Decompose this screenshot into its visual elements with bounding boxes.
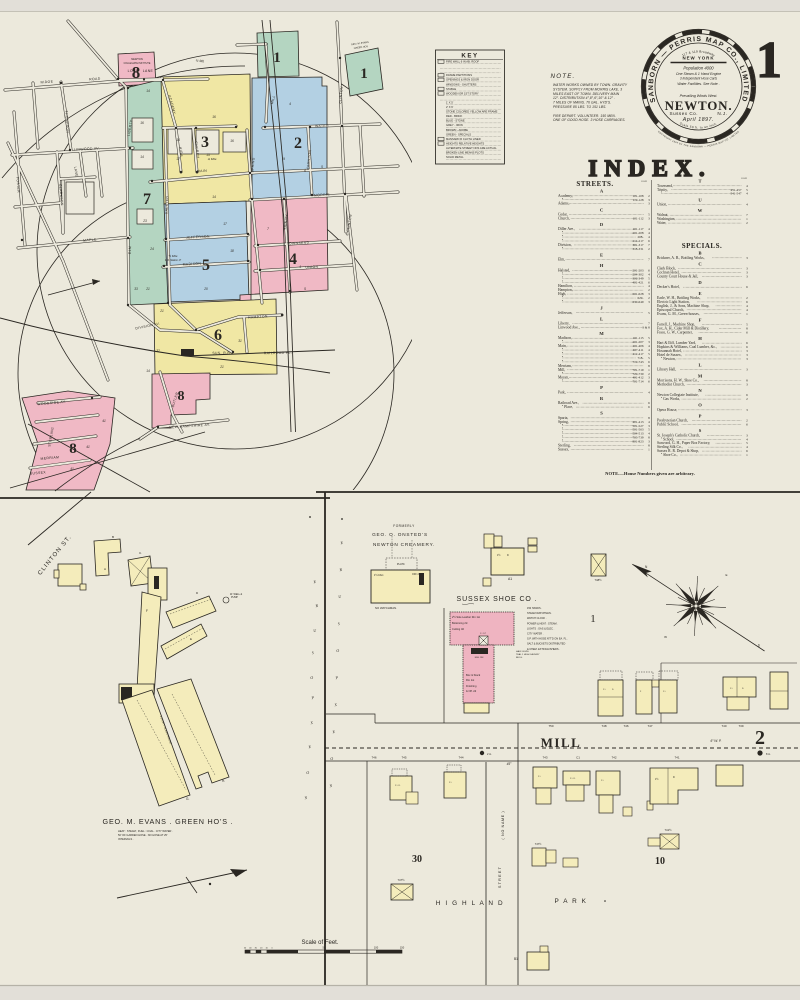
- svg-text:150: 150: [400, 946, 405, 950]
- svg-text:RAILROAD PL.: RAILROAD PL.: [264, 351, 292, 355]
- svg-text:3: 3: [201, 134, 209, 151]
- svg-text:6″ W. P.: 6″ W. P.: [710, 739, 721, 743]
- svg-text:& Off. 2d: & Off. 2d: [466, 689, 477, 693]
- svg-text:10: 10: [655, 856, 665, 867]
- svg-text:LIGHTS : GAS & ELEC .: LIGHTS : GAS & ELEC .: [527, 627, 555, 630]
- svg-text:8: 8: [69, 441, 77, 457]
- svg-text:9: 9: [283, 157, 285, 161]
- svg-text:ENG. RM: ENG. RM: [475, 657, 484, 659]
- svg-text:W: W: [698, 208, 703, 213]
- svg-text:6: 6: [304, 169, 306, 173]
- svg-text:C: C: [600, 207, 603, 212]
- svg-text:Water Facilities. See Note .: Water Facilities. See Note .: [677, 82, 719, 86]
- svg-text:41: 41: [102, 419, 106, 423]
- svg-text:G.: G.: [186, 797, 189, 801]
- svg-text:5: 5: [321, 165, 323, 169]
- svg-text:E: E: [725, 573, 727, 577]
- svg-text:ALTERNATE STREET NOS ARE ACTUA: ALTERNATE STREET NOS ARE ACTUAL: [446, 146, 497, 150]
- svg-text:7: 7: [267, 227, 269, 231]
- svg-text:14: 14: [176, 138, 180, 142]
- svg-text:P: P: [699, 413, 702, 418]
- svg-text:SUSSEX SHOE CO .: SUSSEX SHOE CO .: [457, 596, 538, 603]
- svg-text:STABLE: STABLE: [446, 87, 456, 91]
- svg-text:H: H: [600, 263, 604, 268]
- svg-text:FIRE WALL 6 IN AB. ROOF: FIRE WALL 6 IN AB. ROOF: [446, 60, 479, 64]
- svg-text:Box & Stock: Box & Stock: [466, 673, 481, 677]
- svg-text:23: 23: [142, 219, 147, 223]
- svg-text:¼ Mile: ¼ Mile: [208, 157, 217, 161]
- svg-text:742: 742: [611, 756, 616, 760]
- svg-text:14: 14: [140, 155, 144, 159]
- svg-text:STEAM WATCHMAN .: STEAM WATCHMAN .: [527, 612, 552, 615]
- svg-text:M: M: [599, 331, 604, 336]
- svg-text:747½: 747½: [535, 842, 542, 846]
- svg-text:P: P: [600, 385, 603, 390]
- svg-text:401-421: 401-421: [633, 280, 644, 284]
- svg-text:MAIN: MAIN: [197, 169, 207, 174]
- svg-text:S: S: [600, 411, 603, 416]
- svg-text:Cutting 3d: Cutting 3d: [452, 627, 464, 631]
- svg-text:FIRE DEPART. VOLUNTEER. 150: FIRE DEPART. VOLUNTEER. 150 MEN.: [553, 114, 616, 118]
- svg-text:750: 750: [548, 724, 553, 728]
- svg-text:Rm 1st: Rm 1st: [466, 678, 474, 682]
- svg-text:B: B: [112, 535, 114, 539]
- svg-text:14: 14: [146, 369, 150, 373]
- svg-text:5: 5: [202, 257, 210, 274]
- svg-text:16: 16: [140, 121, 144, 125]
- svg-text:TEAL 1 HIGH CAUSWY: TEAL 1 HIGH CAUSWY: [516, 653, 540, 656]
- svg-text:One Steam & 1 Hand Engine: One Steam & 1 Hand Engine: [676, 72, 721, 76]
- svg-text:14: 14: [212, 195, 216, 199]
- svg-text:STREETS.: STREETS.: [576, 180, 613, 188]
- svg-text:4: 4: [289, 102, 291, 106]
- svg-text:S: S: [758, 643, 760, 647]
- svg-text:31: 31: [238, 339, 242, 343]
- svg-text:744: 744: [458, 756, 463, 760]
- svg-text:Scale of Feet.: Scale of Feet.: [301, 940, 338, 946]
- svg-text:OPENINGS & IRON DOOR: OPENINGS & IRON DOOR: [446, 78, 479, 82]
- svg-text:NEW YORK: NEW YORK: [682, 56, 714, 61]
- svg-text:C.: C.: [139, 551, 142, 555]
- svg-text:6: 6: [214, 327, 222, 344]
- svg-text:GREEN - SPECIALS: GREEN - SPECIALS: [446, 132, 471, 136]
- svg-text:T: T: [698, 179, 701, 184]
- svg-text:HALF LEVEL: HALF LEVEL: [516, 650, 530, 653]
- svg-text:POWER & HEAT : STEAM .: POWER & HEAT : STEAM .: [527, 622, 558, 625]
- svg-text:50' OF GARDEN HOSE . NO HOSE: 50' OF GARDEN HOSE . NO HOSE AT 25': [118, 833, 168, 837]
- svg-text:1½: 1½: [655, 777, 658, 781]
- svg-text:O: O: [698, 403, 702, 408]
- svg-text:7: 7: [143, 191, 151, 208]
- svg-text:OFF 2.: OFF 2.: [412, 573, 420, 576]
- svg-text:L: L: [600, 316, 603, 321]
- svg-text:STREET: STREET: [498, 866, 502, 888]
- svg-text:719-743: 719-743: [633, 360, 644, 364]
- svg-text:2: 2: [294, 135, 302, 152]
- svg-text:Population 4000: Population 4000: [683, 66, 714, 71]
- svg-text:1: 1: [360, 66, 368, 82]
- svg-text:748: 748: [601, 724, 606, 728]
- svg-text:41: 41: [86, 445, 90, 449]
- svg-text:E: E: [190, 637, 192, 641]
- svg-text:KEY: KEY: [461, 53, 478, 60]
- svg-text:GREY - IRON: GREY - IRON: [446, 123, 463, 127]
- svg-text:5: 5: [304, 287, 306, 291]
- svg-text:½ Mile: ½ Mile: [169, 254, 178, 258]
- svg-text:2' X 6': 2' X 6': [446, 105, 454, 109]
- svg-text:32: 32: [156, 349, 160, 353]
- svg-text:WATCH CLOCK .: WATCH CLOCK .: [527, 617, 547, 620]
- svg-text:801-823: 801-823: [633, 440, 644, 444]
- svg-text:101-112: 101-112: [633, 216, 644, 220]
- svg-text:HEAT : STEAM ; FUEL : COAL .: HEAT : STEAM ; FUEL : COAL . CITY WATER …: [118, 829, 173, 833]
- svg-text:541-547: 541-547: [731, 192, 742, 196]
- svg-text:RED - BRICK: RED - BRICK: [446, 114, 462, 118]
- svg-text:H: H: [698, 336, 702, 341]
- svg-text:WATER WORKS OWNED BY TOWN. GRA: WATER WORKS OWNED BY TOWN. GRAVITY: [553, 83, 628, 87]
- svg-text:F: F: [146, 609, 148, 613]
- svg-text:743: 743: [542, 756, 547, 760]
- svg-text:ELM: ELM: [128, 246, 132, 254]
- svg-text:2 in.: 2 in.: [487, 752, 492, 756]
- svg-text:4: 4: [299, 265, 301, 269]
- svg-text:20: 20: [203, 287, 208, 291]
- svg-text:GEO. O. ONSTED’S: GEO. O. ONSTED’S: [372, 532, 428, 537]
- svg-text:748½: 748½: [595, 578, 603, 582]
- svg-text:CITY WATER .: CITY WATER .: [527, 633, 544, 636]
- svg-text:1: 1: [756, 32, 782, 89]
- svg-text:150 HANDS .: 150 HANDS .: [527, 607, 542, 610]
- svg-text:N.J.: N.J.: [717, 111, 727, 116]
- svg-text:PAGE: PAGE: [741, 177, 747, 180]
- svg-text:BLDG.: BLDG.: [516, 657, 523, 659]
- svg-text:NEWTON: NEWTON: [131, 57, 143, 61]
- svg-text:WOODEN OR 1ST STORY: WOODEN OR 1ST STORY: [446, 91, 479, 95]
- svg-text:Bottoming 2d: Bottoming 2d: [452, 621, 468, 625]
- svg-text:PLATF.: PLATF.: [397, 562, 406, 566]
- svg-text:H I G H L A N D: H I G H L A N D: [436, 900, 505, 907]
- svg-text:WINDOWS - SHUTTERS: WINDOWS - SHUTTERS: [446, 82, 477, 86]
- svg-text:H.: H.: [222, 779, 225, 783]
- svg-text:PUMP: PUMP: [231, 596, 238, 599]
- svg-text:PRESSURE 85 LBS. TO 151 LBS.: PRESSURE 85 LBS. TO 151 LBS.: [553, 105, 607, 109]
- svg-text:741½: 741½: [665, 828, 673, 832]
- svg-text:17: 17: [223, 222, 227, 226]
- svg-text:NEWTON CREAMERY.: NEWTON CREAMERY.: [373, 542, 435, 547]
- svg-text:SOLID METAL: SOLID METAL: [446, 155, 464, 159]
- svg-text:FORMERLY: FORMERLY: [393, 524, 415, 528]
- svg-text:S.P. WITH HOSE ATT’D ON EA. FL: S.P. WITH HOSE ATT’D ON EA. FL .: [527, 638, 568, 641]
- svg-text:740: 740: [721, 724, 726, 728]
- svg-text:3 Independent Hose Carts: 3 Independent Hose Carts: [680, 77, 718, 81]
- svg-text:8 in.: 8 in.: [766, 752, 771, 756]
- svg-text:NOTE.—House Numbers given are: NOTE.—House Numbers given are arbitrary.: [605, 471, 695, 476]
- svg-text:HEIGHTS RELATIVE HEIGHTS: HEIGHTS RELATIVE HEIGHTS: [446, 141, 484, 145]
- svg-text:3 & 8: 3 & 8: [642, 325, 650, 329]
- svg-text:A: A: [104, 567, 106, 571]
- svg-text:NO WATCHMAN.: NO WATCHMAN.: [375, 606, 397, 610]
- svg-text:D: D: [673, 776, 675, 779]
- svg-text:1½ FAC.: 1½ FAC.: [374, 573, 384, 577]
- svg-text:14: 14: [146, 89, 150, 93]
- svg-text:12″. DISTRIBUTION 4″,8″,6″,10″: 12″. DISTRIBUTION 4″,8″,6″,10″ & 12″ .: [553, 96, 615, 100]
- svg-text:16: 16: [230, 139, 234, 143]
- svg-text:MANSARD R CLOTH LINED: MANSARD R CLOTH LINED: [446, 137, 481, 141]
- svg-text:WATER: WATER: [315, 124, 329, 128]
- svg-text:LOVE: LOVE: [128, 69, 139, 73]
- svg-text:P A R K: P A R K: [554, 898, 587, 905]
- svg-text:& CHEM. EXTINGUISHERS .: & CHEM. EXTINGUISHERS .: [527, 648, 560, 651]
- svg-text:16: 16: [212, 115, 216, 119]
- svg-text:21: 21: [219, 365, 224, 369]
- svg-text:7 MILES OF MAINS. 76 GAL. HYD': 7 MILES OF MAINS. 76 GAL. HYD'S.: [553, 101, 611, 105]
- svg-text:MILL: MILL: [541, 735, 582, 750]
- svg-text:MORRIS: MORRIS: [314, 193, 330, 198]
- svg-text:Sussex Co.: Sussex Co.: [670, 111, 699, 116]
- svg-text:INTERVALS .: INTERVALS .: [118, 837, 134, 841]
- svg-text:BLUE - STONE: BLUE - STONE: [446, 119, 465, 123]
- svg-text:2: 2: [755, 727, 765, 749]
- svg-text:1½: 1½: [497, 553, 500, 557]
- svg-text:1' X 5': 1' X 5': [446, 100, 454, 104]
- svg-text:24: 24: [149, 247, 154, 251]
- svg-text:701-714: 701-714: [633, 380, 644, 384]
- svg-text:100: 100: [374, 946, 379, 950]
- svg-text:BROKEN LINE MEANS PLOTS: BROKEN LINE MEANS PLOTS: [446, 151, 484, 155]
- svg-text:746: 746: [623, 724, 628, 728]
- svg-text:STONE COLORED YELLOW ARE FRAME: STONE COLORED YELLOW ARE FRAME: [446, 110, 498, 114]
- svg-text:ONE OF GOOD HOSE. 3 HOSE CARRI: ONE OF GOOD HOSE. 3 HOSE CARRIAGES.: [553, 118, 626, 122]
- svg-text:SYSTEM. SUPPLY FROM MORRIS LAK: SYSTEM. SUPPLY FROM MORRIS LAKE, 3: [553, 87, 622, 91]
- svg-text:D: D: [507, 554, 509, 557]
- svg-text:F: F: [699, 317, 702, 322]
- svg-text:W: W: [664, 635, 667, 639]
- svg-text:SPECIALS.: SPECIALS.: [682, 242, 722, 250]
- svg-text:45°: 45°: [507, 762, 513, 766]
- svg-text:746: 746: [371, 756, 376, 760]
- svg-text:L: L: [698, 363, 701, 368]
- svg-text:UNION: UNION: [305, 265, 318, 270]
- svg-text:747½: 747½: [398, 878, 406, 882]
- svg-text:1: 1: [590, 613, 596, 625]
- svg-text:SALT & BUCKETS DISTRIBUTED: SALT & BUCKETS DISTRIBUTED: [527, 643, 565, 646]
- svg-text:NOTE.: NOTE.: [551, 73, 576, 80]
- svg-text:4: 4: [289, 251, 297, 268]
- svg-text:PAGE: PAGE: [641, 180, 647, 183]
- svg-text:April 1897.: April 1897.: [682, 117, 714, 123]
- svg-text:MILES EAST OF TOWN. DELIVERY M: MILES EAST OF TOWN. DELIVERY MAIN: [553, 92, 620, 96]
- svg-text:C1: C1: [576, 756, 580, 760]
- svg-text:1: 1: [273, 50, 281, 66]
- svg-text:B1: B1: [514, 957, 518, 961]
- svg-text:119-128: 119-128: [633, 198, 644, 202]
- svg-text:18: 18: [230, 249, 234, 253]
- svg-text:SUS. R.R.: SUS. R.R.: [212, 351, 231, 355]
- svg-text:COLLEGIATE INSTITUTE: COLLEGIATE INSTITUTE: [124, 62, 151, 65]
- svg-text:INDEX.: INDEX.: [588, 156, 712, 182]
- svg-text:41: 41: [70, 467, 74, 471]
- svg-text:A1: A1: [508, 577, 512, 581]
- svg-text:C: C: [698, 261, 701, 266]
- svg-text:FRAME PARTITIONS: FRAME PARTITIONS: [446, 73, 472, 77]
- svg-text:GEO. M. EVANS . GREEN HO’S: GEO. M. EVANS . GREEN HO’S .: [103, 817, 234, 826]
- svg-text:( NO NAME ): ( NO NAME ): [501, 811, 505, 840]
- svg-text:Finishing: Finishing: [466, 684, 477, 688]
- svg-text:2½ Sole Leather Rm 1st: 2½ Sole Leather Rm 1st: [452, 615, 480, 619]
- svg-text:318-331: 318-331: [633, 247, 644, 251]
- svg-text:BROWN - ADOBE: BROWN - ADOBE: [446, 128, 468, 132]
- svg-text:745: 745: [401, 756, 406, 760]
- svg-text:747: 747: [647, 724, 652, 728]
- svg-text:21: 21: [145, 287, 150, 291]
- svg-text:33: 33: [134, 287, 138, 291]
- svg-text:21: 21: [159, 309, 164, 313]
- svg-text:17: 17: [176, 157, 180, 161]
- svg-text:LANE: LANE: [143, 69, 154, 73]
- svg-text:741: 741: [674, 756, 679, 760]
- svg-text:739: 739: [738, 724, 743, 728]
- svg-text:R.R. Station 1?: R.R. Station 1?: [165, 259, 182, 262]
- svg-text:8: 8: [178, 389, 185, 404]
- svg-text:ROAD: ROAD: [89, 77, 101, 82]
- svg-text:30: 30: [412, 854, 422, 865]
- svg-text:630-649: 630-649: [633, 300, 644, 304]
- svg-text:E: E: [600, 252, 603, 257]
